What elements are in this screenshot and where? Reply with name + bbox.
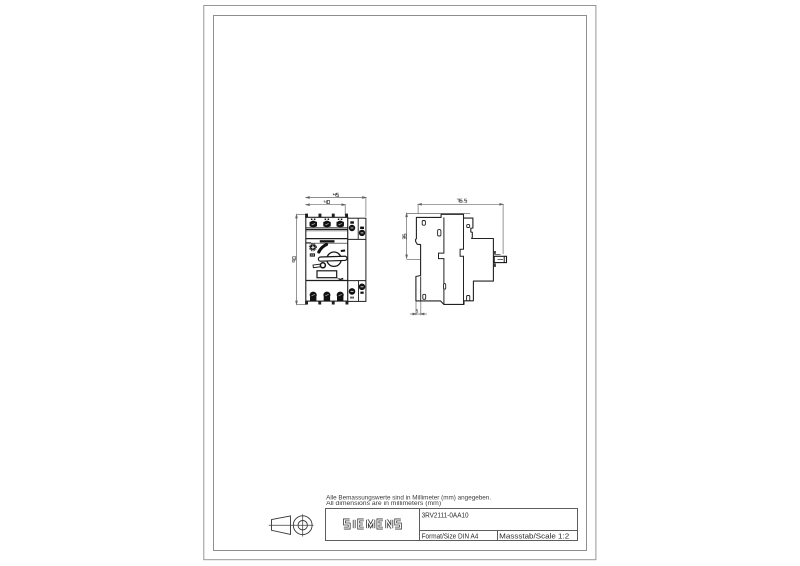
svg-text:Massstab/Scale 1:2: Massstab/Scale 1:2 xyxy=(499,533,569,540)
svg-text:Format/Size DIN A4: Format/Size DIN A4 xyxy=(422,533,479,540)
svg-text:All dimensions are in millimet: All dimensions are in millimeters (mm) xyxy=(326,501,441,507)
svg-text:3RV2111-0AA10: 3RV2111-0AA10 xyxy=(422,510,469,519)
